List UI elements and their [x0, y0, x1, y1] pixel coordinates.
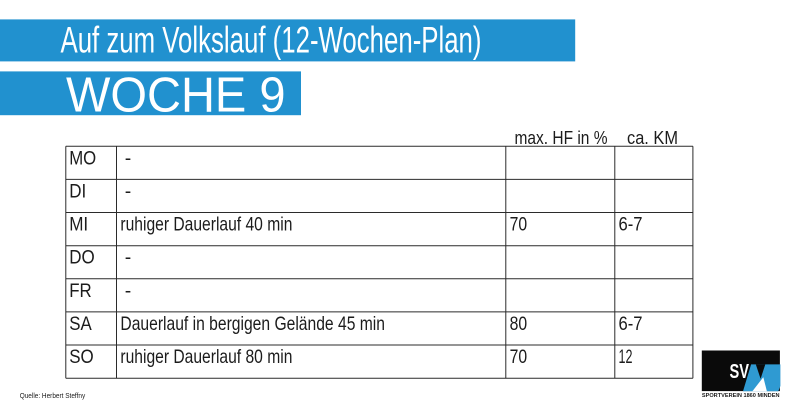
svg-text:WOCHE 9: WOCHE 9 — [66, 68, 286, 122]
svg-text:-: - — [125, 181, 132, 203]
svg-text:DI: DI — [69, 181, 86, 203]
svg-text:6-7: 6-7 — [619, 214, 643, 236]
svg-text:SV: SV — [730, 361, 750, 383]
svg-text:ca. KM: ca. KM — [627, 128, 678, 148]
svg-text:SO: SO — [69, 346, 94, 368]
svg-text:ruhiger Dauerlauf 40 min: ruhiger Dauerlauf 40 min — [120, 214, 292, 236]
svg-text:70: 70 — [510, 214, 528, 236]
svg-text:12: 12 — [619, 346, 633, 368]
svg-text:70: 70 — [510, 346, 528, 368]
svg-text:max. HF in %: max. HF in % — [515, 128, 608, 148]
svg-text:FR: FR — [69, 280, 92, 302]
svg-text:Auf zum Volkslauf (12-Wochen-P: Auf zum Volkslauf (12-Wochen-Plan) — [61, 20, 482, 61]
svg-text:-: - — [125, 247, 132, 269]
svg-text:-: - — [125, 147, 132, 169]
svg-text:ruhiger Dauerlauf 80 min: ruhiger Dauerlauf 80 min — [120, 346, 292, 368]
svg-text:6-7: 6-7 — [619, 313, 643, 335]
svg-text:Dauerlauf in bergigen Gelände: Dauerlauf in bergigen Gelände 45 min — [120, 313, 385, 335]
svg-text:SA: SA — [69, 313, 92, 335]
svg-text:MO: MO — [69, 147, 96, 169]
svg-text:-: - — [125, 280, 132, 302]
svg-text:MI: MI — [69, 214, 88, 236]
svg-text:SPORTVEREIN 1860 MINDEN: SPORTVEREIN 1860 MINDEN — [702, 393, 780, 399]
svg-text:Quelle: Herbert Steffny: Quelle: Herbert Steffny — [20, 393, 86, 400]
svg-text:80: 80 — [510, 313, 528, 335]
svg-text:DO: DO — [69, 247, 95, 269]
